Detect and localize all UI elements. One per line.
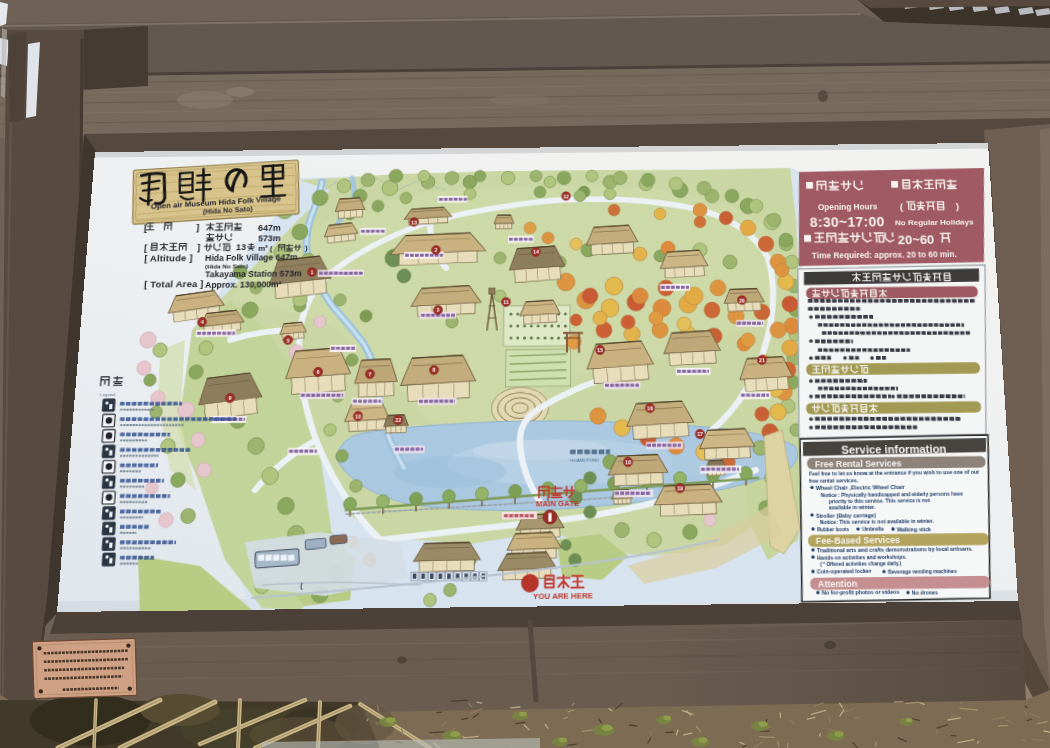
svg-text:Attention: Attention (818, 579, 858, 589)
svg-text:6: 6 (316, 370, 319, 375)
svg-text:GOAMI POND: GOAMI POND (570, 457, 599, 463)
svg-text:17: 17 (697, 432, 703, 437)
svg-text:Walking stick: Walking stick (897, 526, 932, 533)
svg-text:11: 11 (503, 300, 509, 305)
svg-text:Fee-Based Services: Fee-Based Services (816, 535, 901, 546)
svg-text:647m: 647m (258, 222, 281, 232)
svg-text:1: 1 (311, 270, 314, 275)
svg-text:No Regular Holidays: No Regular Holidays (895, 217, 974, 227)
svg-text:Umbrella: Umbrella (862, 526, 885, 533)
svg-text:9: 9 (228, 396, 232, 401)
svg-text:8: 8 (432, 368, 435, 373)
svg-text:Coin-operated locker: Coin-operated locker (817, 568, 871, 575)
svg-text:Free Rental Services: Free Rental Services (815, 458, 903, 469)
svg-text:15: 15 (597, 348, 603, 353)
svg-text:free rental services.: free rental services. (809, 477, 859, 484)
svg-text:Service information: Service information (841, 443, 946, 456)
svg-text:[ Total Area ]: [ Total Area ] (144, 279, 204, 290)
svg-text:20: 20 (739, 298, 745, 303)
svg-text:(: ( (900, 202, 904, 212)
svg-text:2: 2 (435, 248, 438, 253)
svg-text:20~60: 20~60 (898, 233, 935, 247)
svg-text:10: 10 (355, 414, 361, 419)
svg-text:18: 18 (625, 460, 631, 465)
svg-text:Beverage vending machines: Beverage vending machines (888, 568, 957, 575)
svg-text:( * Offered activities change: ( * Offered activities change daily.) (820, 560, 902, 568)
svg-text:21: 21 (759, 358, 765, 363)
svg-text:Rubber boots: Rubber boots (817, 526, 849, 533)
svg-text:YOU ARE HERE: YOU ARE HERE (533, 592, 593, 601)
svg-text:[ Altitude ]: [ Altitude ] (144, 253, 193, 264)
svg-text:): ) (956, 202, 960, 212)
svg-text:Time Required: approx. 20 to 6: Time Required: approx. 20 to 60 min. (812, 250, 957, 261)
svg-text:14: 14 (533, 250, 539, 255)
svg-text:Hida Folk Village 647m: Hida Folk Village 647m (205, 253, 298, 263)
svg-text:available in winter.: available in winter. (829, 504, 876, 511)
svg-text:5: 5 (286, 338, 289, 343)
svg-text:13: 13 (411, 220, 417, 225)
svg-text:3: 3 (437, 308, 440, 313)
svg-text:Opening Hours: Opening Hours (818, 202, 878, 212)
svg-text:MAIN GATE: MAIN GATE (536, 500, 579, 508)
svg-text:22: 22 (395, 418, 401, 423)
svg-text:No for-profit photos or videos: No for-profit photos or videos (822, 589, 900, 597)
svg-text:16: 16 (647, 406, 653, 411)
svg-text:8:30~17:00: 8:30~17:00 (810, 214, 885, 230)
svg-text:573m: 573m (258, 233, 281, 243)
svg-text:Approx. 130,000m²: Approx. 130,000m² (205, 280, 282, 290)
svg-text:7: 7 (368, 372, 371, 377)
svg-text:m² (: m² ( (258, 243, 273, 252)
svg-text:Legend: Legend (100, 392, 116, 397)
svg-text:Takayama Station 573m: Takayama Station 573m (205, 269, 302, 279)
svg-text:No drones: No drones (912, 589, 939, 596)
svg-text:Notice: This service is not av: Notice: This service is not available in… (820, 517, 935, 525)
svg-text:13: 13 (236, 242, 247, 252)
svg-text:19: 19 (677, 486, 683, 491)
svg-text:12: 12 (563, 194, 569, 199)
